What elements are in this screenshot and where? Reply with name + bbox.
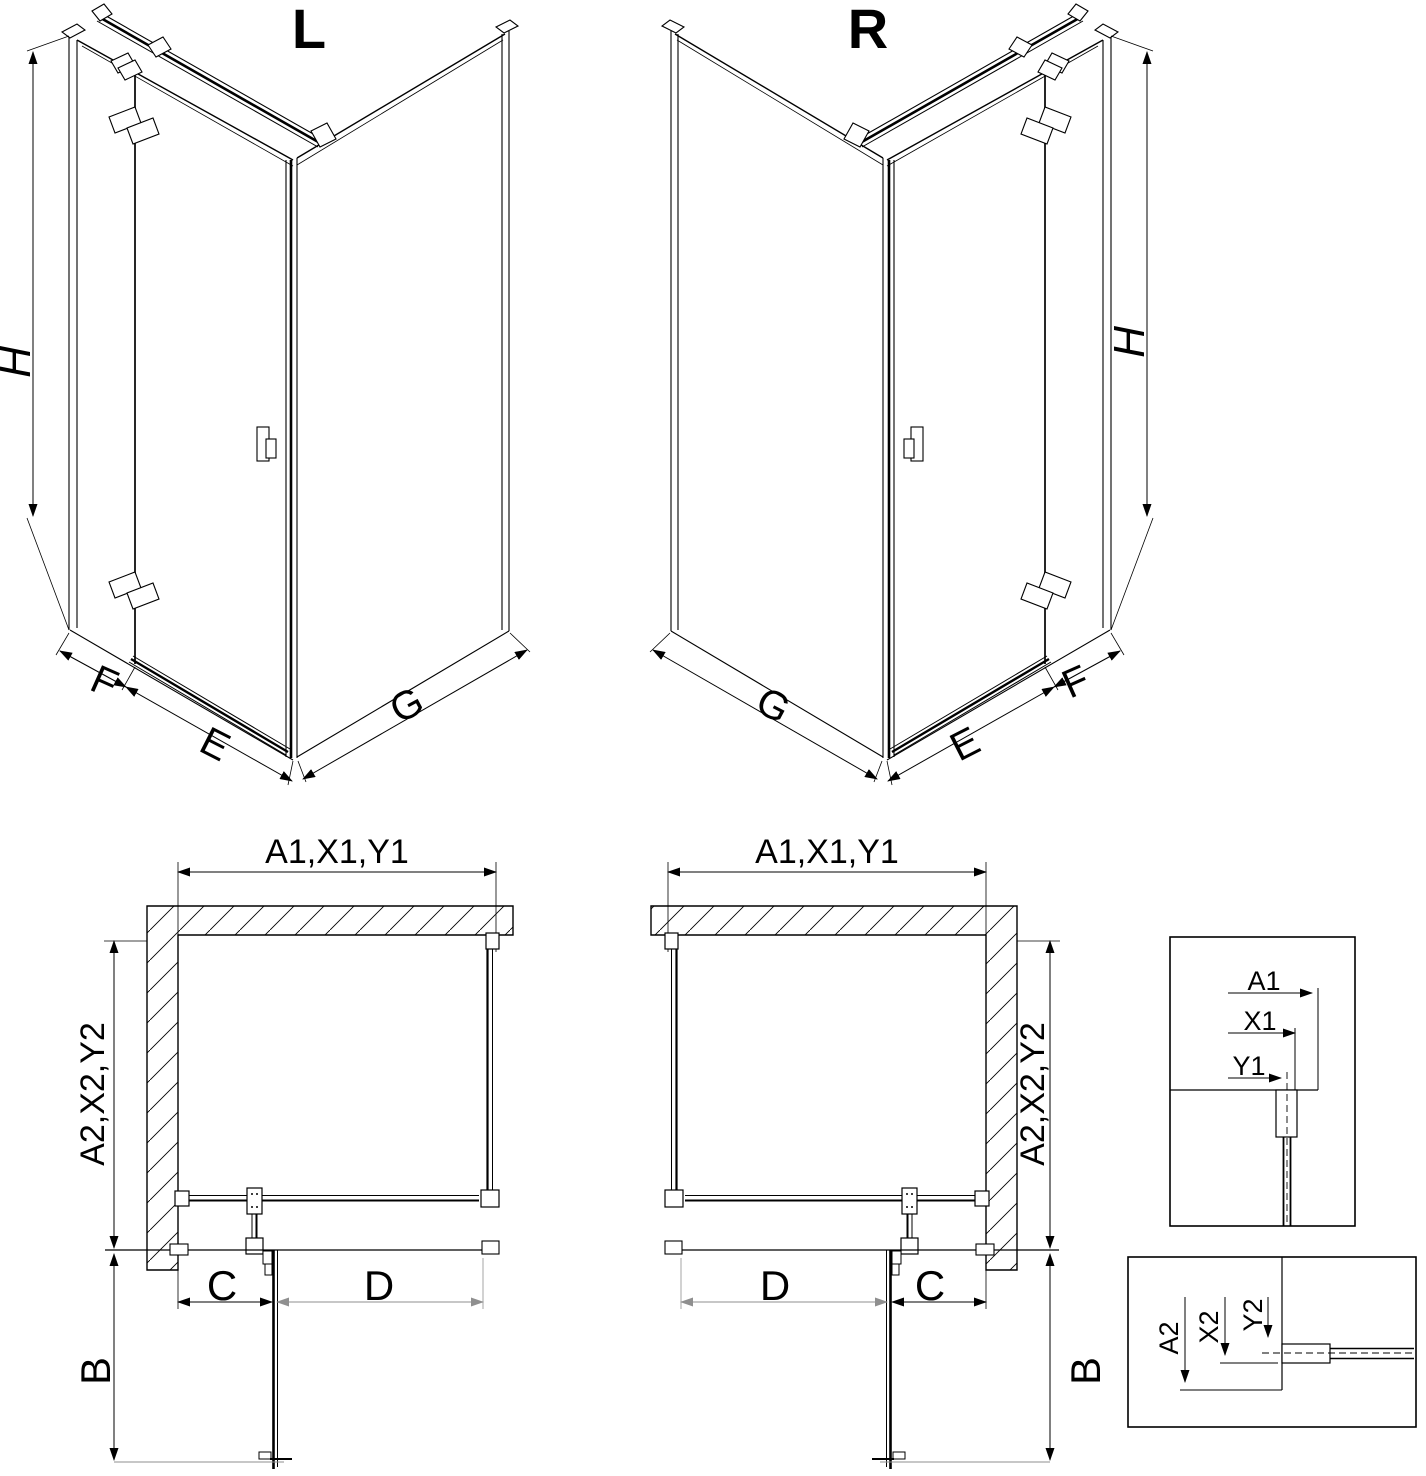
left-plan-view (104, 862, 513, 1469)
label-top-width-left: A1,X1,Y1 (265, 833, 409, 871)
label-detail-x2: X2 (1194, 1310, 1224, 1343)
label-top-width-right: A1,X1,Y1 (755, 833, 899, 871)
label-right-variant: R (848, 0, 888, 60)
label-g-left: G (383, 679, 431, 732)
shower-enclosure-diagram: L R H H F E G G E F A1,X1,Y1 A1,X1,Y1 A2… (0, 0, 1426, 1476)
hatched-wall-right (651, 906, 1017, 1270)
label-f-right: F (1056, 657, 1096, 707)
label-left-variant: L (292, 0, 326, 60)
label-c-right: C (915, 1262, 945, 1309)
label-height-right: H (1105, 326, 1154, 358)
drawing-sheet: L R H H F E G G E F A1,X1,Y1 A1,X1,Y1 A2… (0, 0, 1426, 1476)
label-detail-y2: Y2 (1238, 1298, 1268, 1331)
label-detail-a1: A1 (1247, 966, 1280, 996)
label-detail-x1: X1 (1243, 1006, 1276, 1036)
label-g-right: G (749, 679, 797, 732)
label-d-right: D (760, 1262, 790, 1309)
label-side-depth-right: A2,X2,Y2 (1014, 1022, 1052, 1166)
label-f-left: F (84, 657, 124, 707)
label-e-right: E (943, 719, 987, 770)
label-e-left: E (193, 719, 237, 770)
label-detail-y1: Y1 (1232, 1051, 1265, 1081)
hatched-wall-left (147, 906, 513, 1270)
label-c-left: C (207, 1262, 237, 1309)
label-b-right: B (1062, 1357, 1109, 1385)
label-height-left: H (0, 346, 40, 378)
label-side-depth-left: A2,X2,Y2 (74, 1022, 112, 1166)
right-plan-view (651, 862, 1060, 1469)
label-d-left: D (364, 1262, 394, 1309)
label-detail-a2: A2 (1154, 1321, 1184, 1354)
label-b-left: B (72, 1357, 119, 1385)
